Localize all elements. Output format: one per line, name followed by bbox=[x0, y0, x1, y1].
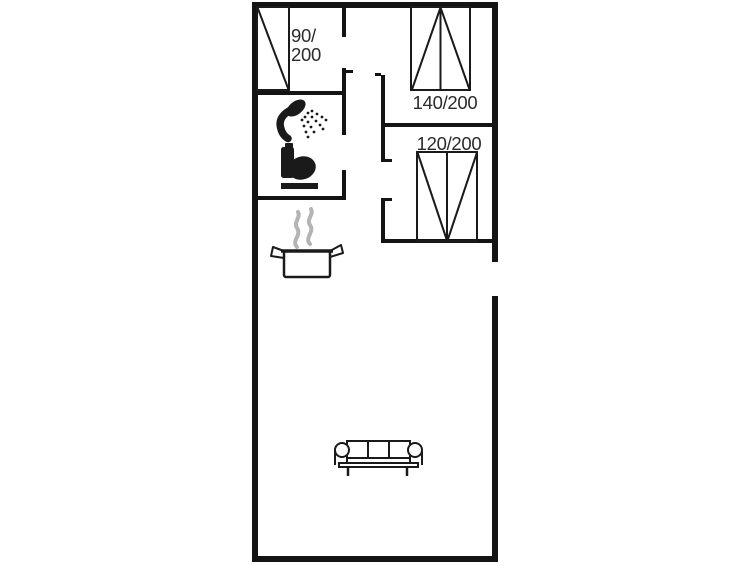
wall-outer-right-upper bbox=[492, 2, 498, 262]
double-bed-icon bbox=[410, 6, 472, 92]
tick-hall-right-top bbox=[375, 73, 381, 76]
single-bed-icon bbox=[256, 6, 292, 92]
bed-140-label: 140/200 bbox=[409, 93, 481, 112]
wall-hall-left-middle bbox=[342, 68, 346, 135]
tick-door-bedroom120-upper bbox=[385, 159, 392, 162]
wall-bedrooms-divider bbox=[381, 123, 492, 127]
cooking-pot-icon bbox=[267, 207, 345, 279]
sofa-icon bbox=[331, 435, 425, 479]
wall-outer-bottom bbox=[252, 556, 498, 562]
wall-outer-right-lower bbox=[492, 296, 498, 562]
wall-hall-right-lower bbox=[381, 198, 385, 243]
shower-spray-dots bbox=[301, 110, 328, 139]
bed-90-label-line2: 200 bbox=[291, 45, 321, 64]
shower-icon bbox=[275, 98, 331, 146]
wall-hall-left-upper bbox=[342, 8, 346, 37]
floorplan: 90/ 200 140/200 120/200 bbox=[0, 0, 755, 566]
wall-bathroom-bottom bbox=[258, 196, 346, 200]
wide-bed-icon bbox=[416, 151, 479, 243]
bed-90-label: 90/ 200 bbox=[291, 26, 321, 64]
tick-door-bedroom90 bbox=[346, 70, 353, 73]
bed-90-label-line1: 90/ bbox=[291, 26, 321, 45]
tick-door-bedroom120-lower bbox=[385, 198, 392, 201]
wall-hall-right-upper bbox=[381, 75, 385, 162]
toilet-icon bbox=[280, 143, 320, 191]
